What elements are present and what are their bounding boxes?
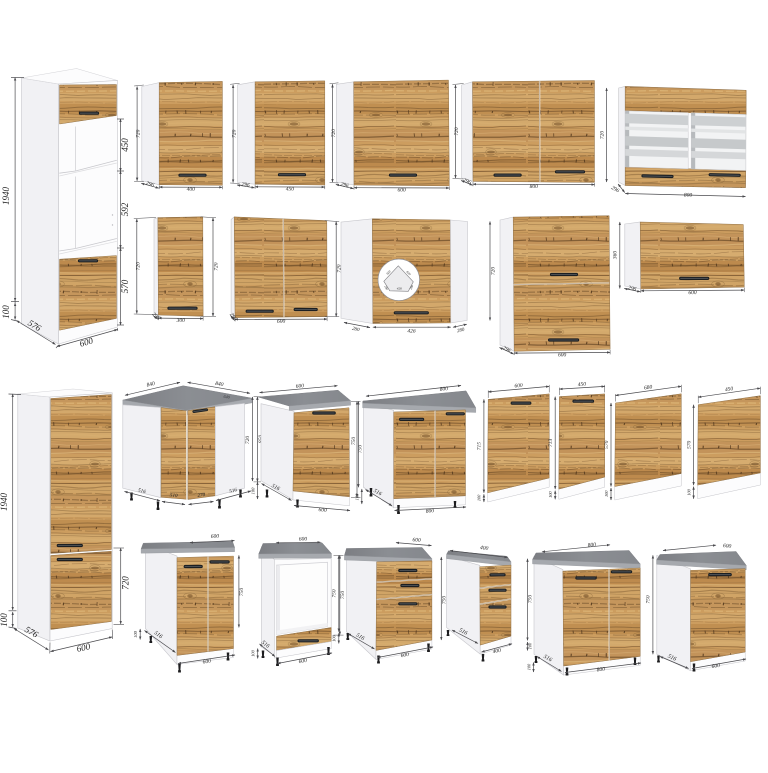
svg-text:720: 720 <box>245 436 251 445</box>
svg-text:800: 800 <box>426 508 435 514</box>
svg-text:300: 300 <box>176 318 186 324</box>
svg-text:100: 100 <box>686 488 691 495</box>
svg-text:400: 400 <box>492 647 502 655</box>
svg-text:600: 600 <box>299 536 308 542</box>
svg-text:800: 800 <box>587 542 596 549</box>
svg-text:570: 570 <box>604 440 610 449</box>
svg-text:720: 720 <box>136 129 142 138</box>
svg-text:592: 592 <box>120 202 130 216</box>
svg-text:713: 713 <box>548 439 554 448</box>
svg-text:450: 450 <box>286 185 295 192</box>
svg-text:100: 100 <box>332 634 337 641</box>
svg-text:600: 600 <box>558 352 567 358</box>
svg-text:720: 720 <box>599 131 605 140</box>
svg-text:100: 100 <box>355 493 360 501</box>
svg-text:840: 840 <box>215 380 225 388</box>
svg-text:720: 720 <box>454 127 460 136</box>
svg-text:600: 600 <box>202 658 211 665</box>
svg-text:750: 750 <box>646 595 652 604</box>
svg-text:400: 400 <box>187 186 196 193</box>
svg-text:750: 750 <box>528 595 534 604</box>
svg-text:600: 600 <box>514 383 523 390</box>
svg-text:100: 100 <box>604 490 609 497</box>
svg-text:600: 600 <box>688 290 697 296</box>
svg-text:800: 800 <box>596 666 605 673</box>
svg-text:426: 426 <box>397 286 402 290</box>
svg-text:426: 426 <box>407 328 416 335</box>
svg-text:800: 800 <box>439 386 448 393</box>
svg-text:100: 100 <box>133 630 138 638</box>
svg-text:510: 510 <box>169 492 178 499</box>
svg-text:100: 100 <box>527 642 532 649</box>
svg-text:100: 100 <box>1 305 11 319</box>
svg-text:800: 800 <box>530 184 539 190</box>
svg-text:720: 720 <box>232 129 238 138</box>
svg-text:570: 570 <box>120 279 130 293</box>
svg-text:100: 100 <box>251 649 256 656</box>
svg-text:600: 600 <box>296 383 305 390</box>
svg-text:720: 720 <box>491 267 497 276</box>
svg-text:600: 600 <box>412 537 421 544</box>
svg-text:450: 450 <box>578 381 587 389</box>
svg-text:600: 600 <box>277 319 286 325</box>
svg-text:600: 600 <box>318 507 327 514</box>
svg-text:750: 750 <box>239 588 245 597</box>
svg-text:680: 680 <box>644 384 653 391</box>
svg-text:720: 720 <box>120 576 130 590</box>
svg-text:720: 720 <box>214 262 220 271</box>
svg-text:100: 100 <box>0 613 9 627</box>
svg-text:750: 750 <box>351 437 357 446</box>
svg-text:360: 360 <box>613 251 619 261</box>
svg-text:1940: 1940 <box>0 493 9 512</box>
svg-text:750: 750 <box>340 591 346 600</box>
svg-text:750: 750 <box>332 589 338 598</box>
svg-text:570: 570 <box>686 441 692 450</box>
svg-text:450: 450 <box>120 138 130 152</box>
svg-text:600: 600 <box>211 534 220 540</box>
svg-text:270: 270 <box>197 492 206 499</box>
svg-text:400: 400 <box>480 544 489 552</box>
svg-text:100: 100 <box>250 487 255 495</box>
svg-text:720: 720 <box>331 129 337 138</box>
svg-text:720: 720 <box>135 262 141 271</box>
svg-text:100: 100 <box>548 491 553 498</box>
svg-text:450: 450 <box>725 385 734 393</box>
svg-text:600: 600 <box>723 543 732 550</box>
svg-text:100: 100 <box>527 663 532 670</box>
svg-text:1940: 1940 <box>1 187 11 206</box>
svg-text:715: 715 <box>477 442 483 451</box>
svg-text:600: 600 <box>397 187 406 193</box>
svg-text:100: 100 <box>477 494 482 501</box>
svg-text:800: 800 <box>684 192 693 198</box>
